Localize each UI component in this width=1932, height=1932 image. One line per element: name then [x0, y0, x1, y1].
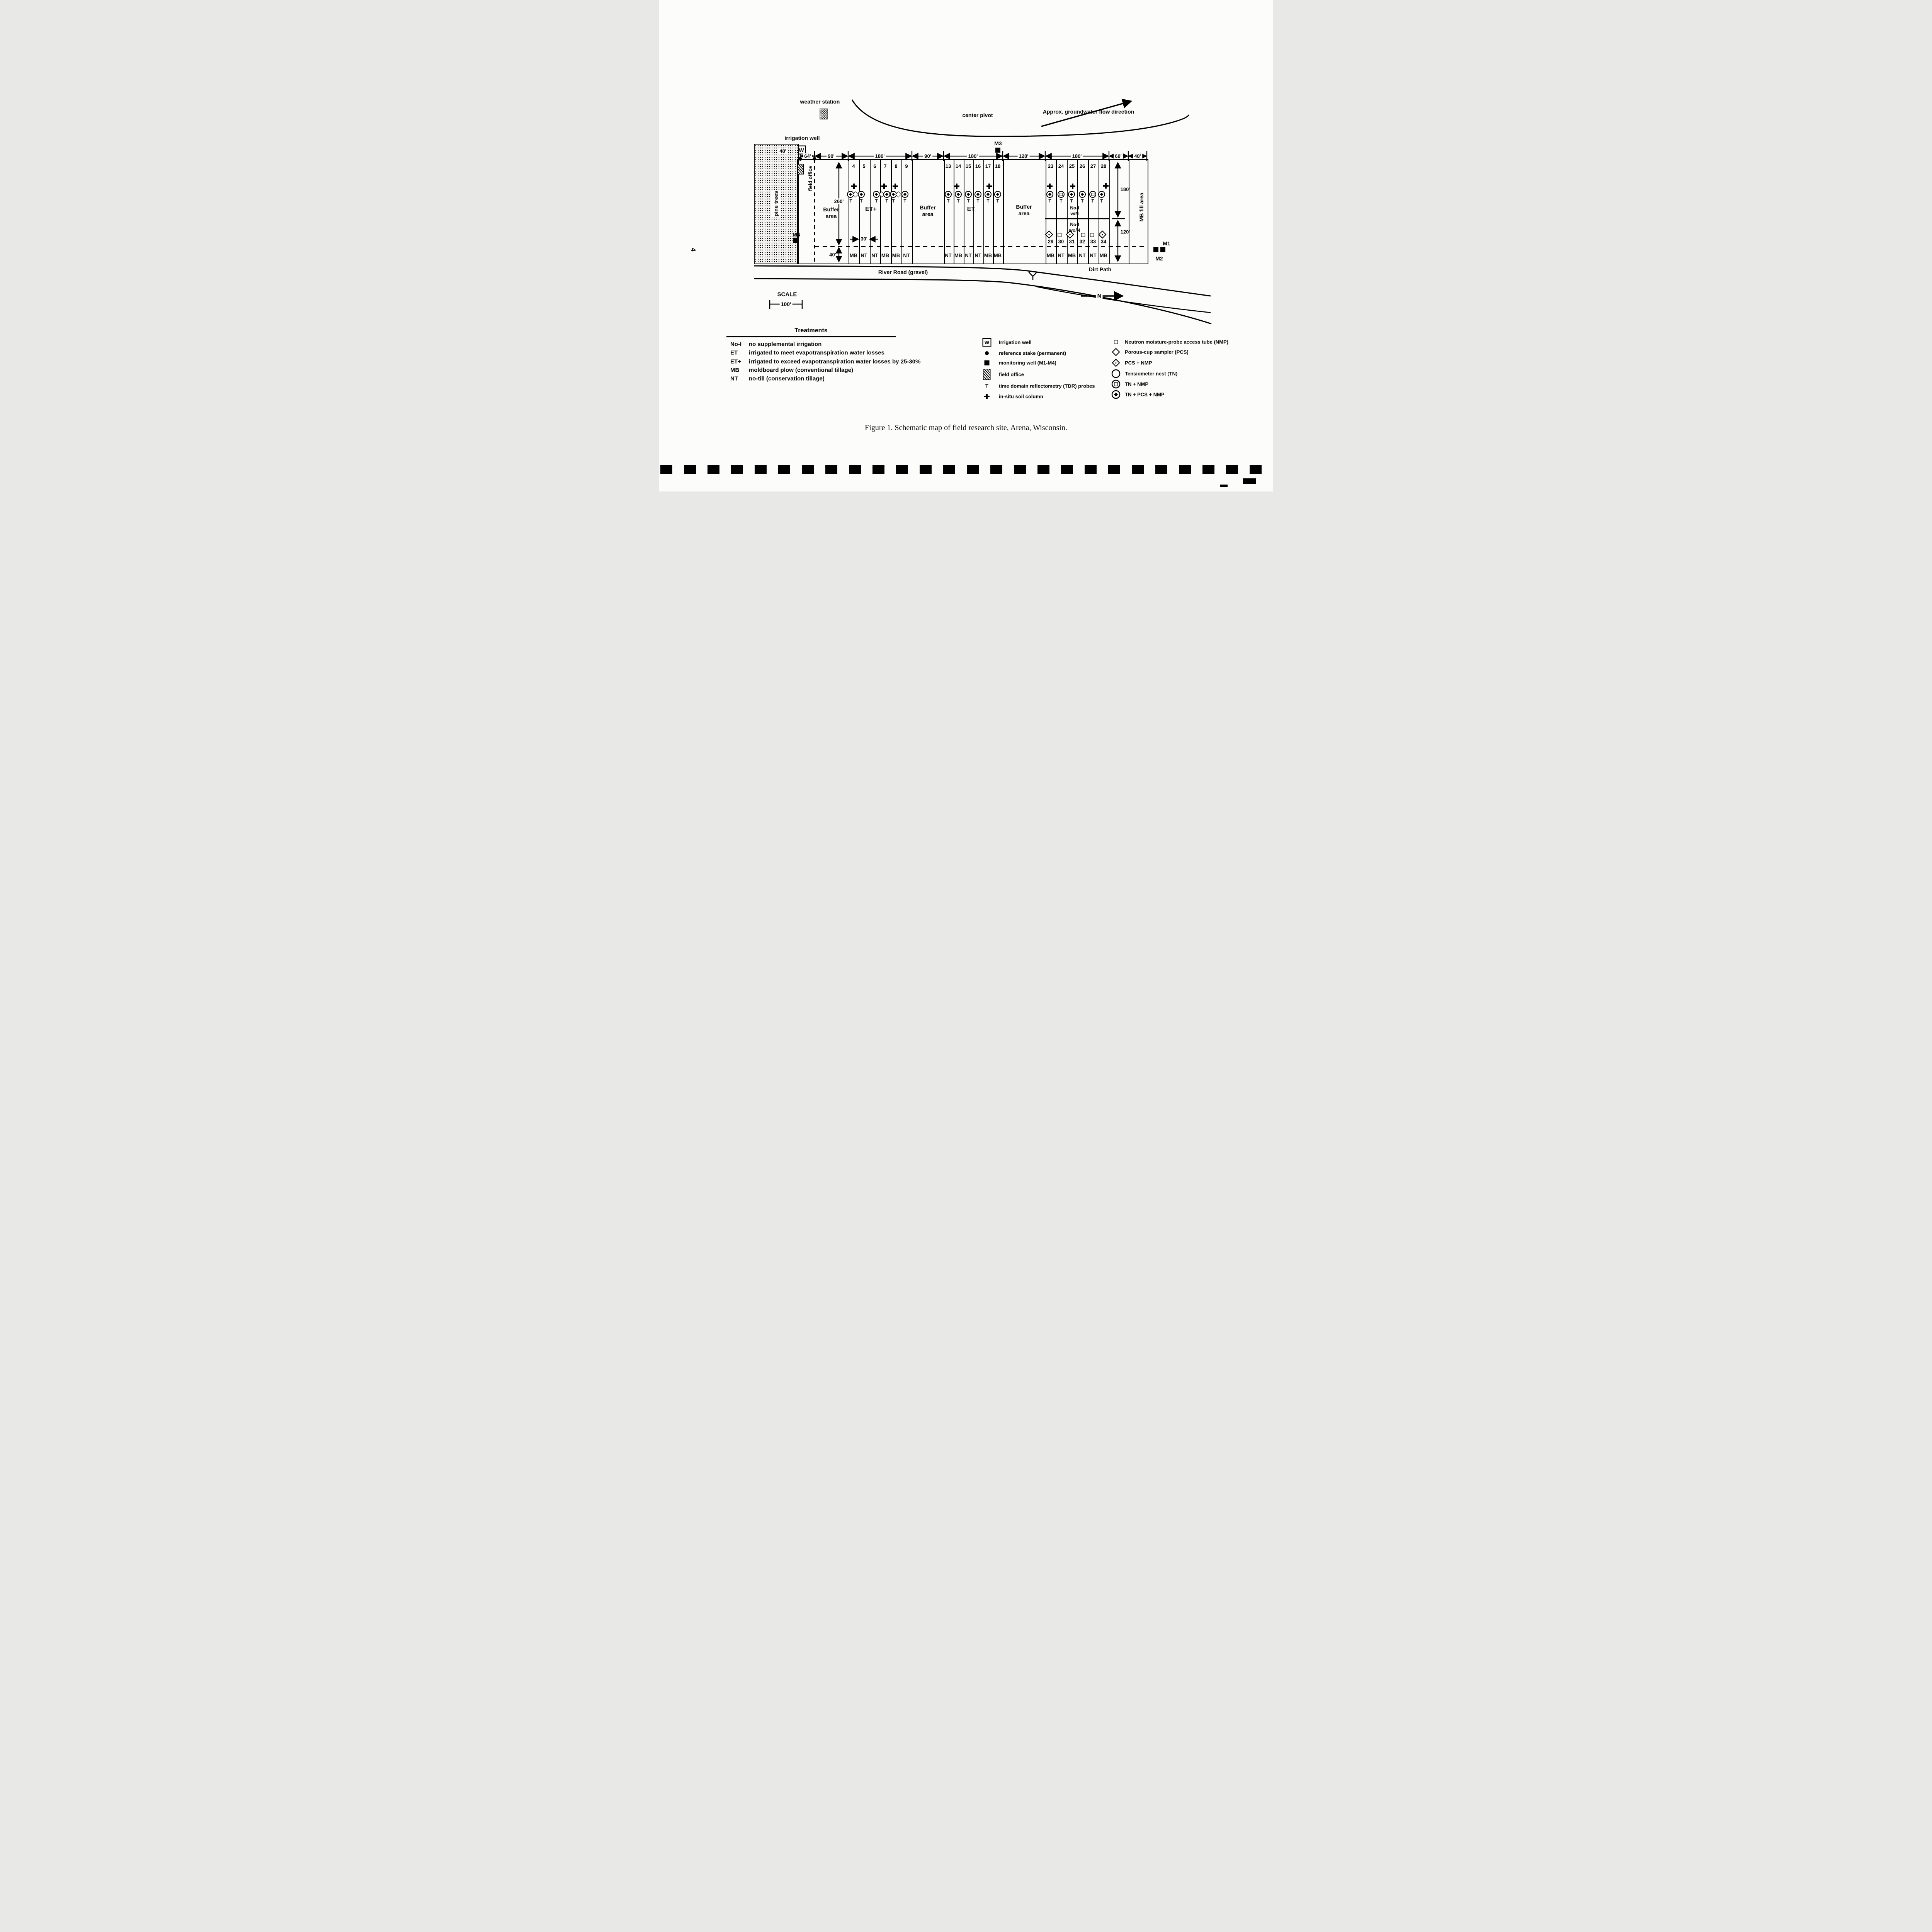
plot-number: 33 — [1090, 239, 1096, 245]
tn-pcs-nmp-icon — [1046, 191, 1053, 198]
legend-label: in-situ soil column — [999, 394, 1043, 400]
dim-40: 40' — [829, 252, 836, 258]
tn-nmp-icon — [1058, 191, 1065, 198]
tillage-label: NT — [1079, 253, 1085, 259]
m3-monitoring-well-icon — [995, 148, 1000, 153]
tn-legend-icon — [1112, 369, 1121, 378]
legend-label: time domain reflectometry (TDR) probes — [999, 383, 1095, 389]
plot-number: 34 — [1101, 239, 1106, 245]
dim-30: 30' — [861, 236, 867, 242]
tdr-probe-mark: T — [1100, 199, 1103, 204]
tdr-probe-mark: T — [1081, 199, 1083, 204]
legend-label: Neutron moisture-probe access tube (NMP) — [1125, 339, 1228, 345]
pine-width-dim: 48' — [778, 148, 787, 154]
tillage-label: MB — [954, 253, 962, 259]
irrigation-well-legend-icon: W — [983, 338, 992, 347]
scale-title: SCALE — [777, 291, 797, 298]
figure-caption: Figure 1. Schematic map of field researc… — [659, 423, 1273, 432]
treatment-abbr: NT — [730, 376, 738, 382]
legend-label: TN + NMP — [1125, 381, 1148, 387]
tillage-label: NT — [1058, 253, 1064, 259]
soil-column-icon — [1103, 183, 1109, 189]
tillage-label: NT — [861, 253, 867, 259]
dim-90a: 90' — [827, 153, 836, 159]
tdr-probe-mark: T — [1060, 199, 1062, 204]
tdr-probe-mark: T — [996, 199, 999, 204]
river-road-upper-edge — [754, 266, 1211, 296]
plot-number: 24 — [1058, 163, 1064, 169]
plot-number: 15 — [966, 163, 971, 169]
groundwater-flow-label: Approx. groundwater flow direction — [1043, 109, 1134, 115]
tillage-label: NT — [975, 253, 981, 259]
m1-monitoring-well-icon — [1160, 247, 1165, 252]
plot-number: 27 — [1090, 163, 1096, 169]
m1-label: M1 — [1163, 240, 1170, 247]
tillage-label: MB — [881, 253, 889, 259]
tdr-probe-mark: T — [967, 199, 969, 204]
tillage-label: NT — [965, 253, 971, 259]
treatment-abbr: No-I — [730, 341, 742, 348]
tn-pcs-nmp-legend-icon — [1112, 390, 1121, 399]
tillage-label: NT — [945, 253, 951, 259]
plot-number: 29 — [1048, 239, 1053, 245]
buffer-area-label: Buffer — [920, 204, 935, 211]
soil-column-legend-icon — [984, 394, 990, 399]
tn-pcs-nmp-icon — [975, 191, 981, 198]
tn-pcs-nmp-icon — [883, 191, 890, 198]
tillage-label: MB — [984, 253, 992, 259]
treatment-desc: no supplemental irrigation — [749, 341, 821, 348]
legend-label: Porous-cup sampler (PCS) — [1125, 349, 1189, 355]
soil-column-icon — [893, 184, 898, 189]
page-number: 4 — [689, 248, 696, 252]
legend-label: field office — [999, 372, 1024, 378]
noi-won-label: No-I — [1070, 222, 1079, 227]
dim-60: 60' — [1114, 153, 1123, 159]
dim-right-120: 120' — [1121, 229, 1130, 235]
center-pivot-arc — [852, 100, 1189, 136]
tdr-probe-mark: T — [849, 199, 852, 204]
tdr-probe-mark: T — [947, 199, 949, 204]
tillage-label: MB — [892, 253, 900, 259]
treatments-title: Treatments — [794, 327, 827, 334]
dim-180b: 180' — [967, 153, 979, 159]
pcs-icon — [896, 192, 901, 197]
nmp-icon — [1090, 233, 1094, 237]
m4-label: M4 — [793, 231, 800, 238]
tn-pcs-nmp-icon — [945, 191, 952, 198]
pcs-nmp-icon — [1100, 232, 1105, 238]
tn-pcs-nmp-icon — [858, 191, 865, 198]
m2-label: M2 — [1155, 255, 1163, 262]
tillage-label: MB — [1068, 253, 1076, 259]
treatment-abbr: ET — [730, 350, 738, 356]
tillage-label: MB — [994, 253, 1002, 259]
buffer-area-label: Buffer — [823, 206, 839, 213]
tillage-label: MB — [1100, 253, 1107, 259]
plot-number: 17 — [985, 163, 991, 169]
treatment-abbr: MB — [730, 367, 739, 374]
et-plus-block-label: ET+ — [865, 206, 877, 213]
tn-nmp-icon — [1089, 191, 1096, 198]
plot-number: 4 — [852, 163, 855, 169]
weather-station-icon — [820, 109, 828, 119]
road-fork — [1029, 272, 1037, 280]
pcs-legend-icon — [1113, 349, 1119, 355]
tn-pcs-nmp-icon — [1098, 191, 1105, 198]
pcs-icon — [854, 192, 858, 197]
plot-number: 32 — [1080, 239, 1085, 245]
soil-column-icon — [881, 184, 887, 189]
plot-number: 23 — [1048, 163, 1053, 169]
plot-number: 13 — [946, 163, 951, 169]
dim-180c: 180' — [1071, 153, 1083, 159]
tn-nmp-legend-icon — [1112, 380, 1121, 389]
tdr-probe-mark: T — [986, 199, 989, 204]
reference-stake-legend-icon — [985, 351, 989, 355]
plot-number: 26 — [1080, 163, 1085, 169]
noi-won-label: wo/N — [1069, 228, 1080, 233]
buffer-area-label: area — [826, 213, 837, 219]
legend-label: PCS + NMP — [1125, 360, 1152, 366]
tdr-probe-mark: T — [892, 199, 895, 204]
pine-trees-label: pine trees — [771, 190, 781, 218]
page-edge-mark — [1220, 485, 1228, 487]
dim-260: 260' — [833, 199, 845, 204]
m2-monitoring-well-icon — [1153, 247, 1158, 252]
tn-pcs-nmp-icon — [965, 191, 972, 198]
plot-number: 28 — [1101, 163, 1106, 169]
noi-wn-label: w/N — [1070, 211, 1078, 216]
buffer-area-label: Buffer — [1016, 204, 1032, 210]
tillage-label: NT — [1090, 253, 1096, 259]
dim-90b: 90' — [923, 153, 932, 159]
tn-pcs-nmp-icon — [955, 191, 962, 198]
tn-pcs-nmp-icon — [985, 191, 992, 198]
tdr-probe-mark: T — [860, 199, 862, 204]
treatment-desc: moldboard plow (conventional tillage) — [749, 367, 853, 374]
monitoring-well-legend-icon — [985, 361, 990, 366]
legend-label: Tensiometer nest (TN) — [1125, 371, 1177, 377]
tn-pcs-nmp-icon — [1068, 191, 1075, 198]
plot-number: 5 — [862, 163, 865, 169]
legend-label: monitoring well (M1-M4) — [999, 360, 1056, 366]
tillage-label: MB — [850, 253, 857, 259]
m4-monitoring-well-icon — [793, 238, 799, 243]
soil-column-icon — [954, 184, 959, 189]
nmp-icon — [1058, 233, 1061, 237]
treatment-abbr: ET+ — [730, 359, 741, 365]
noi-wn-label: No-I — [1070, 205, 1079, 211]
tdr-probe-mark: T — [903, 199, 906, 204]
river-road-lower-edge — [754, 279, 1211, 324]
legend-label: Irrigation well — [999, 340, 1032, 345]
treatment-desc: irrigated to exceed evapotranspiration w… — [749, 359, 920, 365]
pcs-nmp-icon — [1046, 232, 1052, 238]
irrigation-well-label: irrigation well — [784, 135, 820, 141]
pcs-nmp-legend-icon — [1113, 360, 1119, 366]
et-block-label: ET — [967, 206, 975, 213]
treatments-underline — [726, 336, 896, 337]
plot-number: 9 — [905, 163, 908, 169]
dim-120: 120' — [1018, 153, 1030, 159]
treatment-desc: no-till (conservation tillage) — [749, 376, 825, 382]
dim-64: 64' — [803, 153, 812, 159]
plot-number: 16 — [975, 163, 981, 169]
dirt-path-label: Dirt Path — [1089, 266, 1111, 272]
plot-number: 6 — [873, 163, 876, 169]
treatment-desc: irrigated to meet evapotranspiration wat… — [749, 350, 884, 356]
tn-pcs-nmp-icon — [1079, 191, 1086, 198]
soil-column-icon — [1070, 184, 1075, 189]
tn-pcs-nmp-icon — [901, 191, 908, 198]
plot-number: 18 — [995, 163, 1000, 169]
scanned-figure-page: weather station center pivot Approx. gro… — [659, 0, 1273, 492]
page-edge-binding-marks — [660, 465, 1273, 474]
buffer-area-label: area — [1019, 210, 1030, 216]
tdr-probe-mark: T — [1048, 199, 1051, 204]
field-office-legend-icon — [983, 369, 991, 380]
tdr-probe-mark: T — [957, 199, 959, 204]
tillage-label: NT — [903, 253, 910, 259]
plot-number: 30 — [1058, 239, 1064, 245]
plot-number: 31 — [1069, 239, 1075, 245]
m3-label: M3 — [994, 140, 1002, 146]
buffer-area-label: area — [922, 211, 934, 217]
tdr-probe-mark: T — [875, 199, 878, 204]
weather-station-label: weather station — [800, 99, 840, 105]
tillage-label: MB — [1047, 253, 1054, 259]
plot-number: 8 — [895, 163, 897, 169]
plot-number: 14 — [956, 163, 961, 169]
tdr-probe-legend-icon: T — [985, 383, 988, 389]
soil-column-icon — [1047, 184, 1053, 189]
mb-fill-area-label: MB fill area — [1138, 193, 1145, 222]
tillage-label: NT — [871, 253, 878, 259]
tdr-probe-mark: T — [885, 199, 888, 204]
soil-column-icon — [986, 184, 992, 189]
plot-number: 7 — [884, 163, 886, 169]
dim-right-180: 180' — [1121, 187, 1130, 192]
tdr-probe-mark: T — [1070, 199, 1073, 204]
soil-column-icon — [851, 184, 857, 189]
nmp-legend-icon — [1114, 340, 1118, 344]
dirt-path-lower-edge — [1037, 287, 1211, 313]
page-edge-mark — [1243, 478, 1256, 484]
plot-number: 25 — [1069, 163, 1075, 169]
scale-length: 100' — [780, 301, 793, 307]
legend-label: reference stake (permanent) — [999, 350, 1066, 356]
center-pivot-label: center pivot — [962, 112, 993, 118]
dim-180a: 180' — [874, 153, 886, 159]
tdr-probe-mark: T — [1091, 199, 1094, 204]
river-road-label: River Road (gravel) — [878, 269, 928, 275]
north-label: N — [1096, 293, 1103, 299]
tdr-probe-mark: T — [976, 199, 979, 204]
dim-48: 48' — [1133, 153, 1142, 159]
tn-pcs-nmp-icon — [994, 191, 1001, 198]
legend-label: TN + PCS + NMP — [1125, 392, 1165, 398]
nmp-icon — [1081, 233, 1085, 237]
